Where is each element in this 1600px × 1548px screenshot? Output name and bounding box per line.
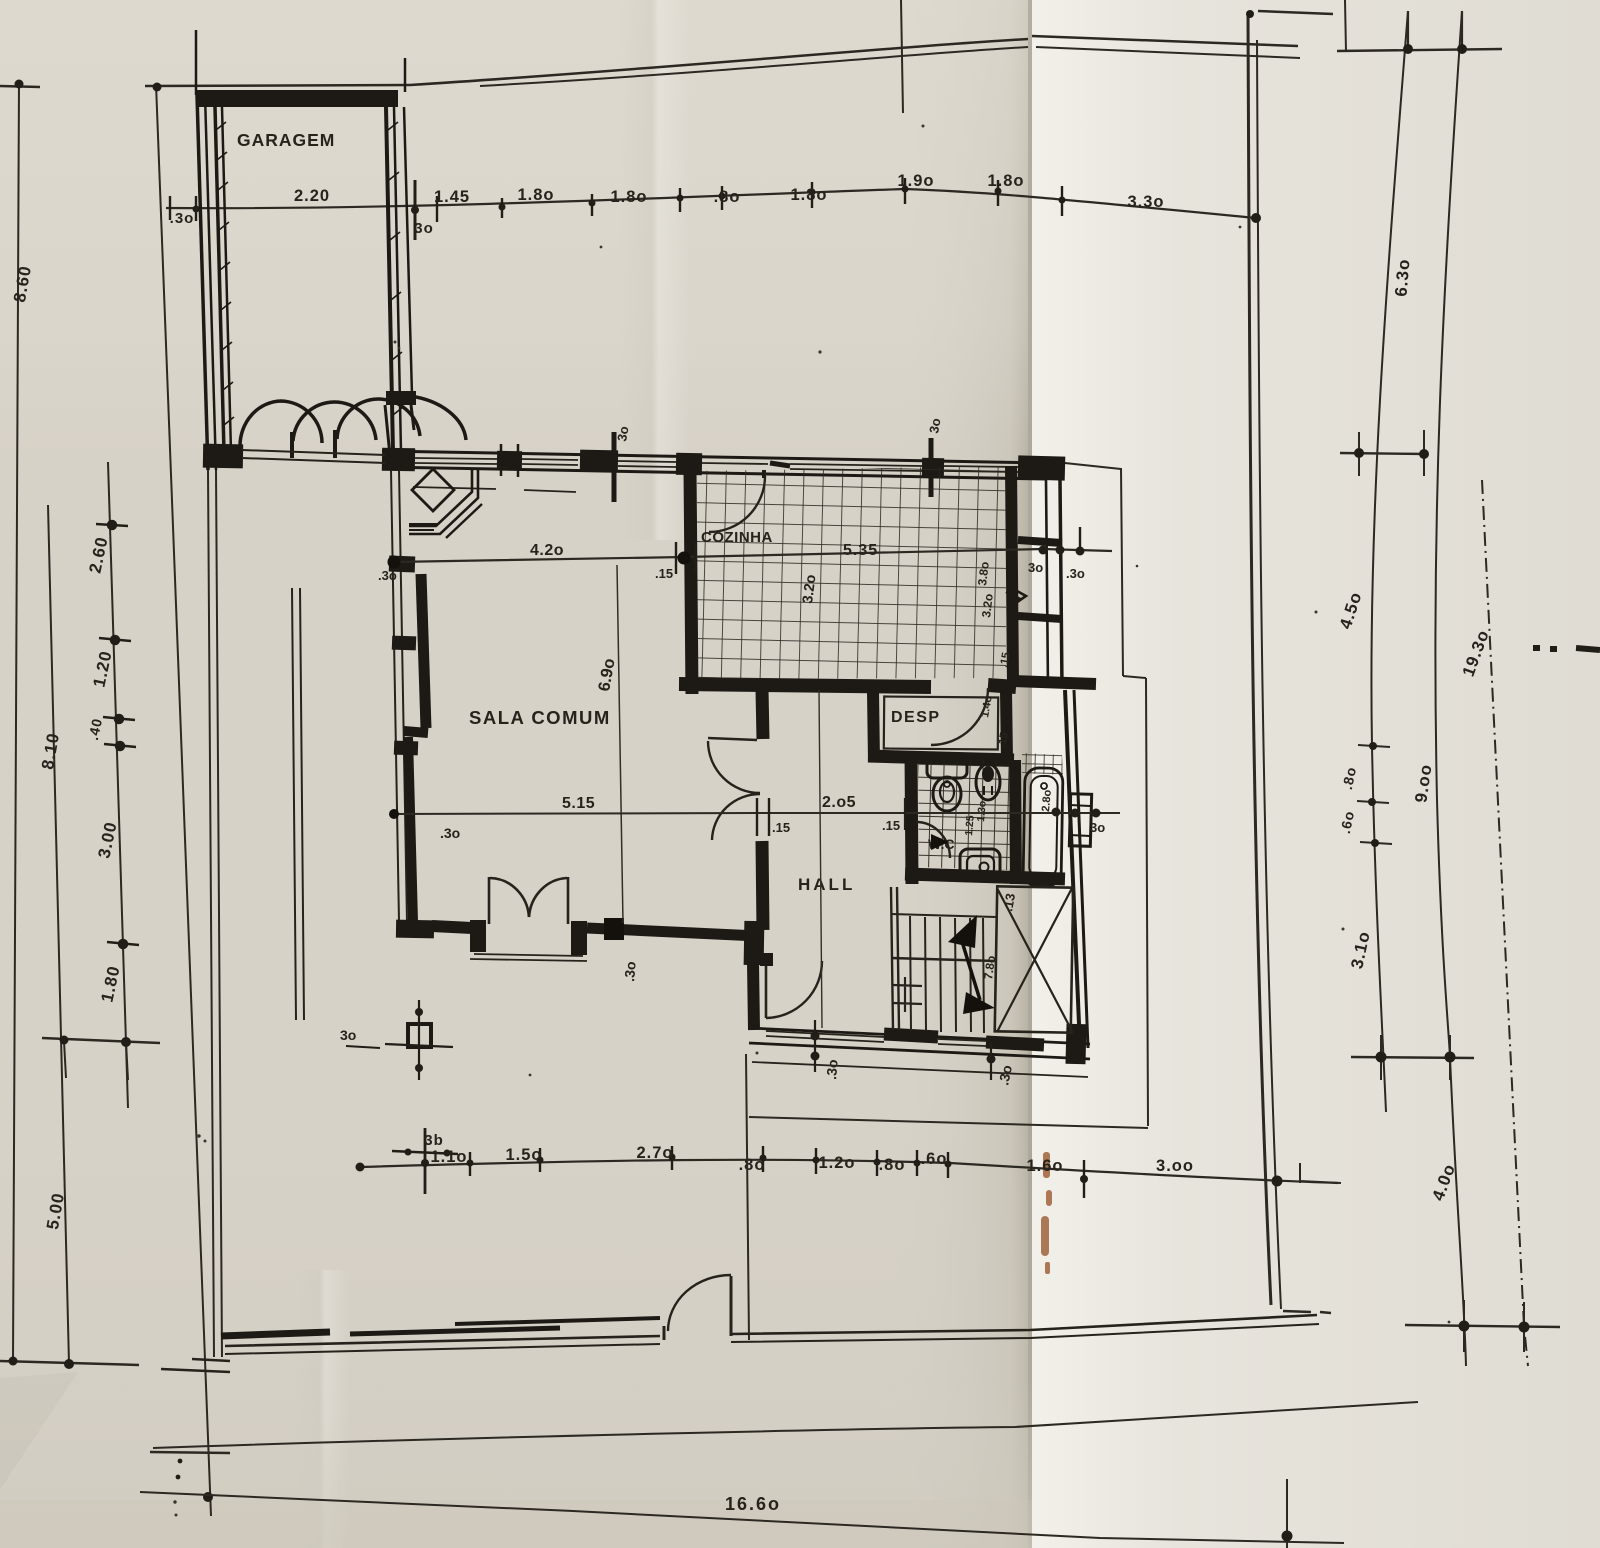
svg-text:.8o: .8o [879, 1156, 906, 1174]
svg-text:3o: 3o [926, 417, 943, 435]
svg-text:1.6o: 1.6o [1026, 1157, 1063, 1175]
svg-text:3o: 3o [1090, 820, 1105, 835]
svg-text:GARAGEM: GARAGEM [237, 130, 335, 150]
svg-text:.6o: .6o [921, 1150, 948, 1168]
svg-text:5.15: 5.15 [562, 795, 595, 812]
svg-text:1.3o: 1.3o [975, 800, 989, 822]
svg-text:2.o5: 2.o5 [822, 794, 856, 811]
svg-text:1.5o: 1.5o [505, 1146, 542, 1164]
svg-text:2.20: 2.20 [294, 187, 330, 205]
svg-text:3o: 3o [340, 1027, 356, 1043]
svg-text:16.6o: 16.6o [725, 1494, 781, 1514]
svg-text:3o: 3o [614, 425, 631, 443]
svg-text:.3o: .3o [170, 210, 195, 227]
svg-text:1.8o: 1.8o [610, 188, 647, 206]
svg-text:1.1o: 1.1o [430, 1148, 467, 1166]
svg-text:.13: .13 [1000, 892, 1018, 912]
svg-text:4.2o: 4.2o [530, 542, 564, 559]
svg-text:3.2o: 3.2o [979, 593, 996, 619]
svg-text:HALL: HALL [798, 875, 855, 894]
svg-text:1.2o: 1.2o [818, 1154, 855, 1172]
svg-text:3o: 3o [1028, 560, 1043, 575]
svg-text:3b: 3b [424, 1132, 444, 1149]
svg-text:1.8o: 1.8o [987, 172, 1024, 190]
svg-text:SALA COMUM: SALA COMUM [469, 707, 611, 728]
svg-text:3.3o: 3.3o [1127, 193, 1164, 211]
svg-text:2.7o: 2.7o [636, 1144, 673, 1162]
svg-text:3.8o: 3.8o [975, 561, 992, 587]
svg-text:.15: .15 [882, 818, 900, 833]
svg-text:1.45: 1.45 [434, 188, 470, 206]
svg-text:.8o: .8o [739, 1156, 766, 1174]
svg-text:1.8o: 1.8o [790, 186, 827, 204]
svg-text:3.oo: 3.oo [1156, 1157, 1194, 1175]
svg-text:.15: .15 [655, 566, 673, 581]
svg-text:COZINHA: COZINHA [701, 529, 773, 546]
svg-text:1.9o: 1.9o [897, 172, 934, 190]
svg-text:DESP: DESP [891, 709, 941, 726]
svg-text:.3o: .3o [1066, 566, 1085, 581]
svg-text:.15: .15 [772, 820, 790, 835]
svg-text:.3o: .3o [621, 961, 639, 983]
svg-text:.3o: .3o [378, 568, 397, 583]
svg-text:3o: 3o [414, 220, 434, 237]
svg-text:5.35: 5.35 [843, 542, 878, 559]
svg-text:2.8o: 2.8o [1040, 789, 1054, 812]
svg-text:.3o: .3o [440, 825, 460, 841]
svg-text:.3o: .3o [823, 1059, 841, 1081]
svg-text:.8o: .8o [714, 188, 741, 206]
svg-text:1.8o: 1.8o [517, 186, 554, 204]
svg-text:6.3o: 6.3o [1391, 258, 1413, 298]
